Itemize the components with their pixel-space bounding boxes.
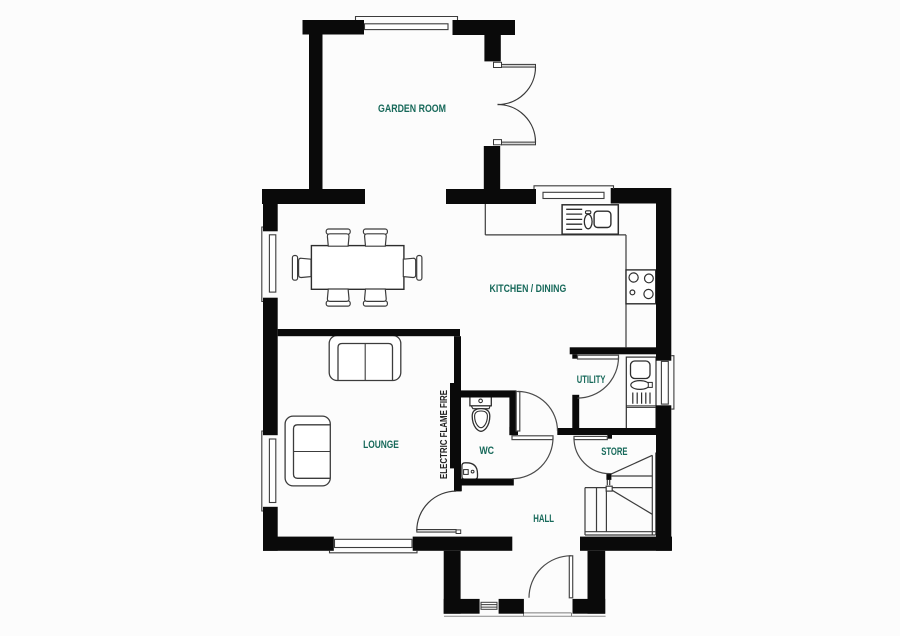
svg-text:KITCHEN / DINING: KITCHEN / DINING — [490, 283, 567, 295]
svg-text:UTILITY: UTILITY — [577, 374, 606, 386]
svg-text:LOUNGE: LOUNGE — [363, 439, 399, 451]
svg-text:STORE: STORE — [601, 446, 627, 458]
svg-text:WC: WC — [479, 445, 494, 457]
svg-text:HALL: HALL — [533, 513, 554, 525]
svg-text:GARDEN ROOM: GARDEN ROOM — [378, 103, 446, 115]
svg-text:ELECTRIC FLAME FIRE: ELECTRIC FLAME FIRE — [439, 390, 450, 479]
